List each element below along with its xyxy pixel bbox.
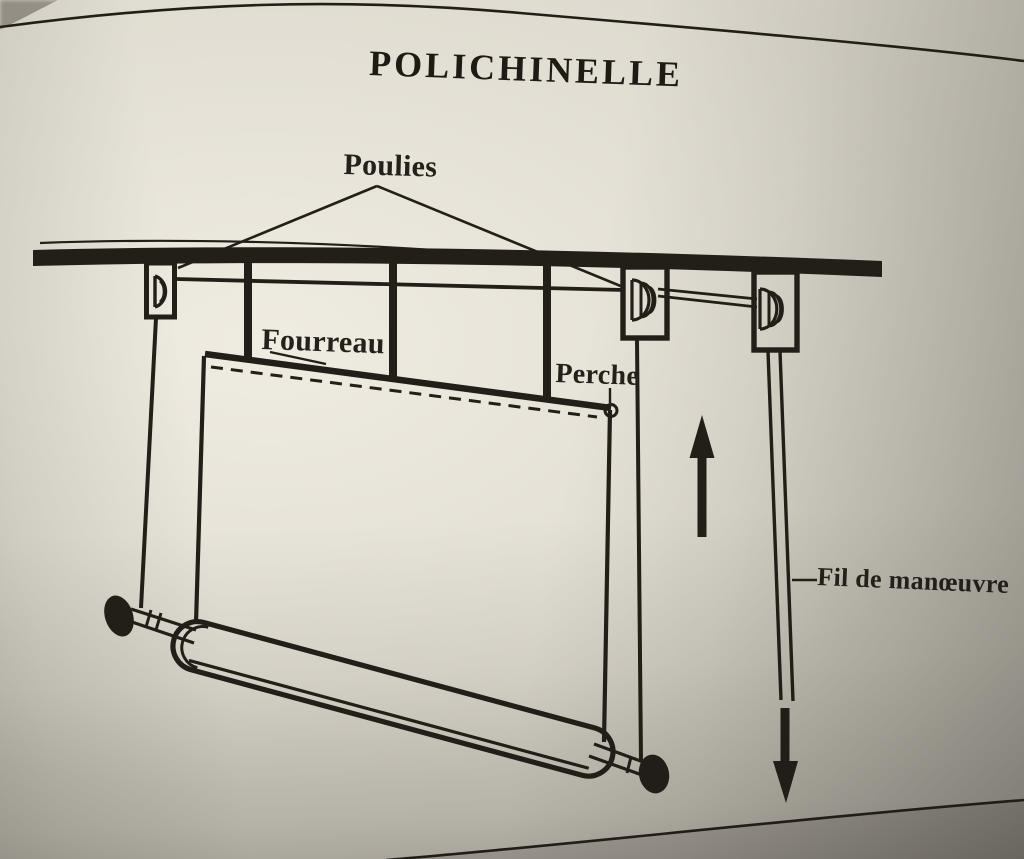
rope-rod-between-pulleys (658, 289, 757, 307)
roller-end-disc-left (99, 592, 139, 641)
rope-horizontal (176, 279, 624, 290)
label-poulies: Poulies (343, 148, 438, 185)
curtain-left-edge (196, 356, 204, 623)
up-arrow-icon (690, 415, 715, 537)
book-page: POLICHINELLE Poulies Fourreau Perche Fil… (0, 0, 1024, 859)
label-perche: Perche (555, 358, 640, 393)
pulley-right-1 (623, 267, 667, 338)
roller-axle-right (589, 744, 646, 775)
curtain (196, 354, 611, 742)
rope-operating-double (768, 351, 793, 701)
pulley-left (147, 263, 175, 317)
pulley-right-2 (754, 272, 797, 350)
down-arrow-icon (773, 708, 798, 803)
poulies-leader-right (377, 186, 623, 287)
label-fourreau: Fourreau (261, 323, 386, 361)
roller-axle-left (129, 609, 196, 643)
rope-left-down (141, 318, 156, 608)
curtain-right-edge (604, 410, 610, 742)
fourreau-dashed-seam (211, 367, 597, 417)
rope-right-down (637, 340, 641, 762)
polichinelle-diagram (0, 0, 1024, 859)
roller (167, 616, 618, 782)
